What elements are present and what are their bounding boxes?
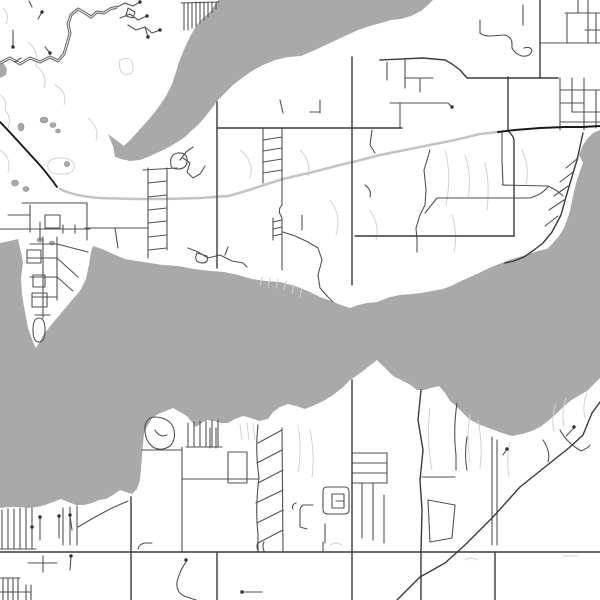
pond <box>56 129 61 133</box>
pond <box>12 180 19 186</box>
road-end-dot <box>240 590 243 593</box>
road-end-dot <box>38 515 41 518</box>
pond <box>23 187 29 192</box>
pond <box>64 161 69 166</box>
road-end-dot <box>48 51 51 54</box>
map-canvas <box>0 0 600 600</box>
road-end-dot <box>138 0 141 3</box>
road-end-dot <box>450 105 453 108</box>
road-end-dot <box>184 558 187 561</box>
pond <box>18 123 24 131</box>
road-end-dot <box>68 513 71 516</box>
road-end-dot <box>572 425 575 428</box>
road-end-dot <box>146 35 149 38</box>
pond <box>50 123 56 128</box>
road-end-dot <box>30 525 33 528</box>
road-end-dot <box>11 45 14 48</box>
pond <box>40 117 48 123</box>
map-viewport[interactable] <box>0 0 600 600</box>
road-end-dot <box>145 14 148 17</box>
road-end-dot <box>40 10 43 13</box>
road-end-dot <box>158 28 161 31</box>
road-end-dot <box>69 554 72 557</box>
road-end-dot <box>57 514 60 517</box>
road-end-dot <box>505 447 508 450</box>
